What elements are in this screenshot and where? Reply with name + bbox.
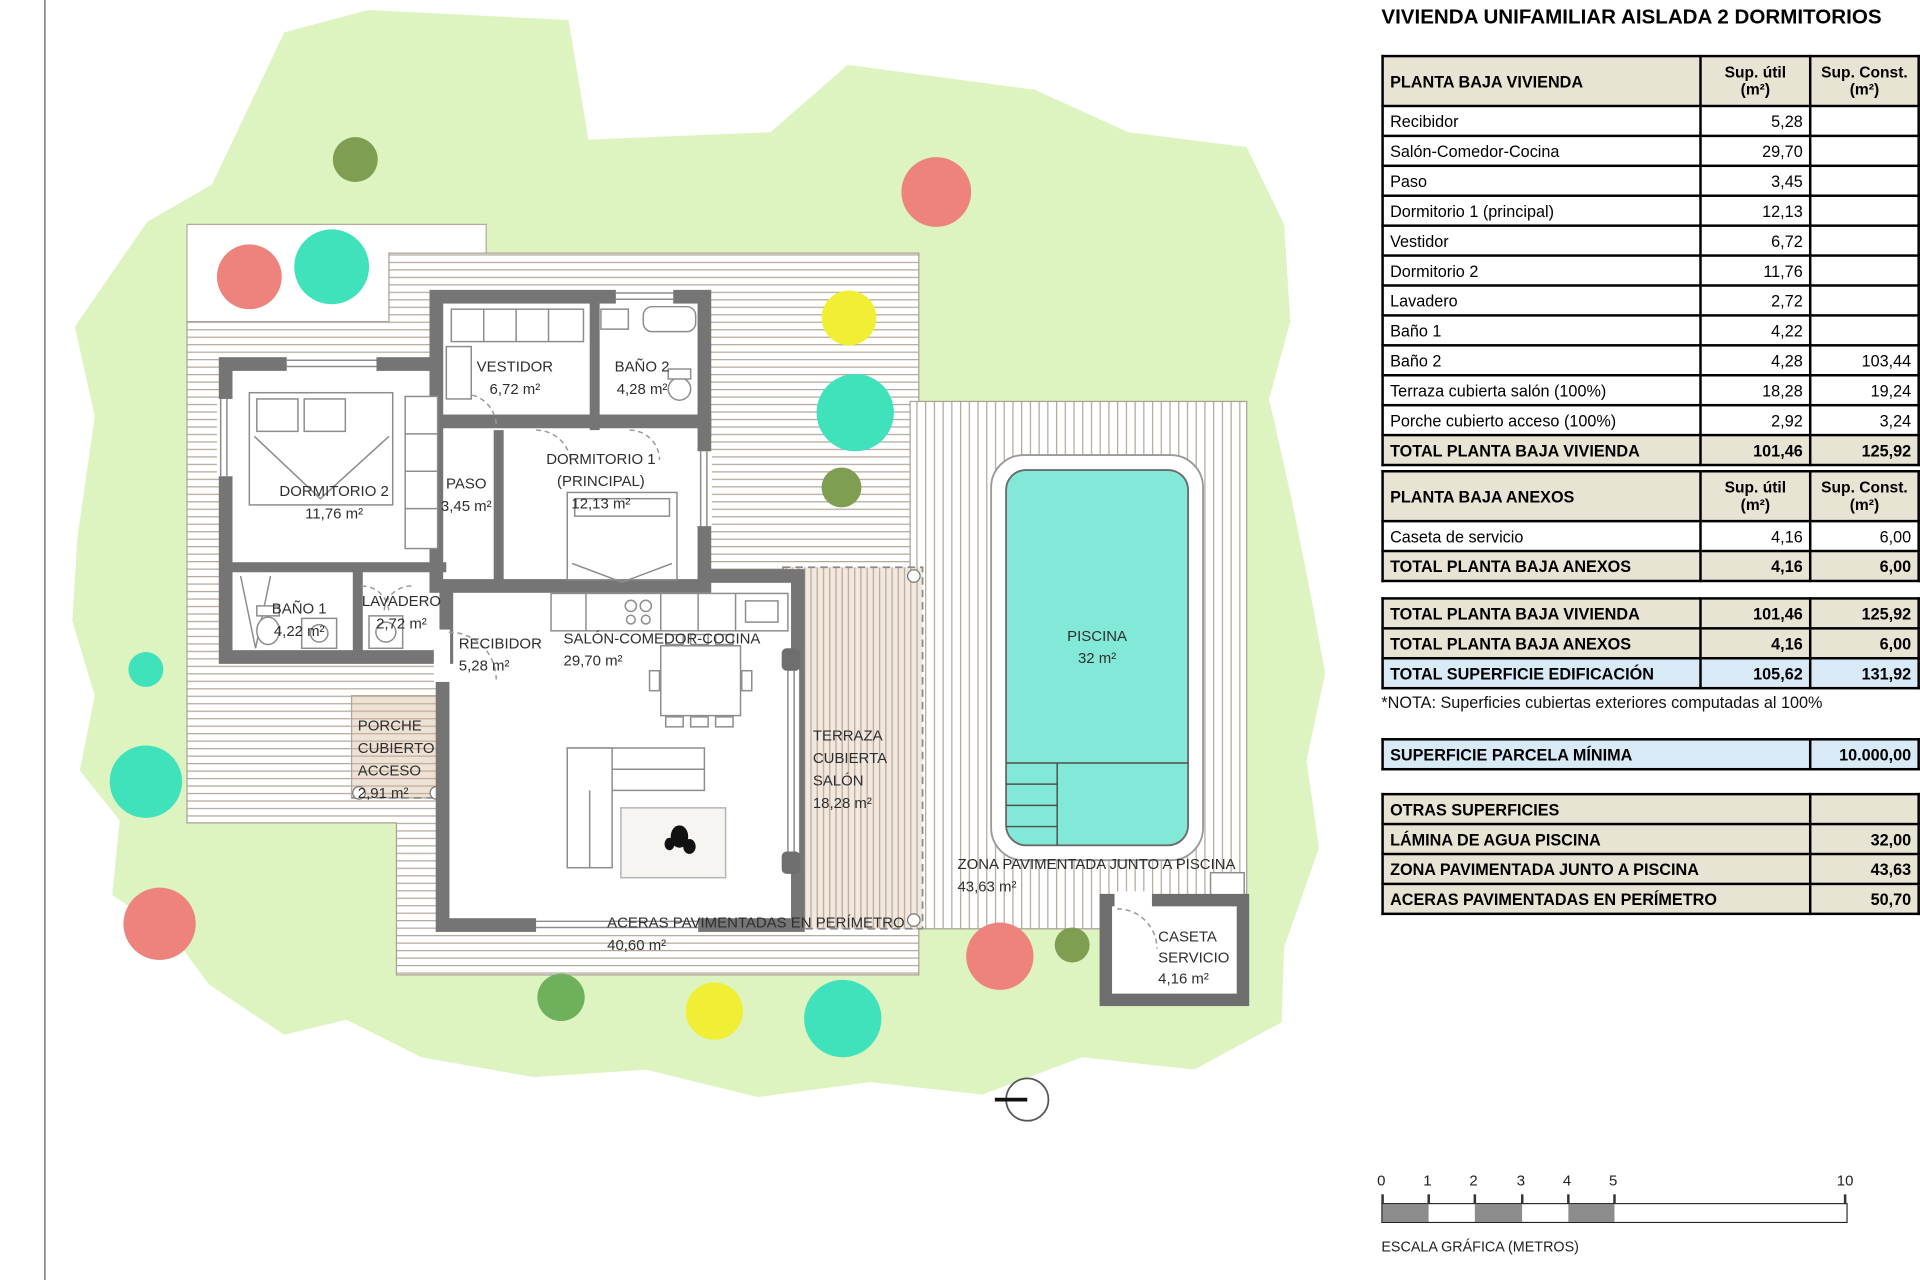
row-util: 11,76 (1700, 256, 1810, 286)
scale-bar: 0 1 2 3 4 5 10 ESCALA GRÁFICA (METROS) (1381, 1172, 1855, 1256)
row-value: 43,63 (1810, 854, 1918, 884)
label-porche: PORCHE (358, 718, 422, 735)
row-label: Caseta de servicio (1383, 521, 1701, 551)
row-label: Salón-Comedor-Cocina (1383, 136, 1701, 166)
total-util: 101,46 (1700, 598, 1810, 628)
total-label: TOTAL PLANTA BAJA ANEXOS (1383, 628, 1701, 658)
table-total-row: TOTAL PLANTA BAJA ANEXOS4,166,00 (1383, 551, 1919, 581)
label-caseta-area: 4,16 m² (1158, 971, 1209, 988)
label-vestidor: VESTIDOR (477, 359, 554, 376)
table-row: Caseta de servicio4,166,00 (1383, 521, 1919, 551)
row-label: Paso (1383, 166, 1701, 196)
row-const: 103,44 (1810, 345, 1918, 375)
label-salon: SALÓN-COMEDOR-COCINA (564, 630, 761, 647)
table-row: ACERAS PAVIMENTADAS EN PERÍMETRO50,70 (1383, 884, 1919, 914)
tree (537, 974, 584, 1021)
table-row: LÁMINA DE AGUA PISCINA32,00 (1383, 824, 1919, 854)
row-util: 4,16 (1700, 521, 1810, 551)
row-label: Lavadero (1383, 285, 1701, 315)
label-terraza-l2: CUBIERTA (813, 750, 887, 767)
tree (294, 229, 369, 304)
label-recibidor-area: 5,28 m² (459, 658, 510, 675)
scale-ticks (1381, 1194, 1855, 1203)
row-label: Baño 2 (1383, 345, 1701, 375)
page-title: VIVIENDA UNIFAMILIAR AISLADA 2 DORMITORI… (1381, 6, 1920, 30)
terrace-column (908, 914, 920, 926)
row-util: 2,92 (1700, 405, 1810, 435)
tree (901, 157, 971, 227)
table-resumen: TOTAL PLANTA BAJA VIVIENDA101,46125,92 T… (1381, 597, 1920, 689)
label-caseta: CASETA (1158, 928, 1217, 945)
total-util: 101,46 (1700, 435, 1810, 465)
table-header: PLANTA BAJA VIVIENDA (1383, 56, 1701, 106)
plan-sheet: DORMITORIO 2 11,76 m² BAÑO 1 4,22 m² LAV… (0, 0, 1920, 1280)
row-util: 4,28 (1700, 345, 1810, 375)
table-row: ZONA PAVIMENTADA JUNTO A PISCINA43,63 (1383, 854, 1919, 884)
total-const: 125,92 (1810, 598, 1918, 628)
row-const (1810, 315, 1918, 345)
table-row: Dormitorio 211,76 (1383, 256, 1919, 286)
scale-tick-label: 3 (1517, 1172, 1525, 1189)
total-const: 131,92 (1810, 658, 1918, 688)
table-parcela-minima: SUPERFICIE PARCELA MÍNIMA 10.000,00 (1381, 738, 1920, 770)
total-label: TOTAL SUPERFICIE EDIFICACIÓN (1383, 658, 1701, 688)
table-row: Recibidor5,28 (1383, 106, 1919, 136)
label-terraza-l3: SALÓN (813, 772, 864, 789)
nota-text: *NOTA: Superficies cubiertas exteriores … (1381, 693, 1917, 712)
row-value: 32,00 (1810, 824, 1918, 854)
col-sup-util: Sup. útil (m²) (1700, 56, 1810, 106)
total-label: TOTAL PLANTA BAJA VIVIENDA (1383, 435, 1701, 465)
scale-tick-labels: 0 1 2 3 4 5 10 (1381, 1172, 1855, 1194)
row-label: Baño 1 (1383, 315, 1701, 345)
scale-tick-label: 0 (1377, 1172, 1385, 1189)
tree (804, 980, 881, 1057)
table-total-row: TOTAL PLANTA BAJA ANEXOS4,166,00 (1383, 628, 1919, 658)
label-terraza-area: 18,28 m² (813, 795, 872, 812)
row-const (1810, 136, 1918, 166)
label-terraza: TERRAZA (813, 728, 883, 745)
table-row: Salón-Comedor-Cocina29,70 (1383, 136, 1919, 166)
row-label: Dormitorio 2 (1383, 256, 1701, 286)
row-const (1810, 106, 1918, 136)
label-aceras: ACERAS PAVIMENTADAS EN PERÍMETRO (607, 915, 904, 932)
col-sup-const: Sup. Const. (m²) (1810, 471, 1918, 521)
row-const (1810, 196, 1918, 226)
table-total-row: TOTAL PLANTA BAJA VIVIENDA101,46125,92 (1383, 598, 1919, 628)
label-porche-l2: CUBIERTO (358, 740, 435, 757)
row-label: Recibidor (1383, 106, 1701, 136)
table-row: Terraza cubierta salón (100%)18,2819,24 (1383, 375, 1919, 405)
parcela-label: SUPERFICIE PARCELA MÍNIMA (1383, 739, 1811, 769)
table-total-row: TOTAL PLANTA BAJA VIVIENDA101,46125,92 (1383, 435, 1919, 465)
row-label: Vestidor (1383, 226, 1701, 256)
tree (817, 374, 894, 451)
label-dorm1-l2: (PRINCIPAL) (557, 473, 645, 490)
row-const (1810, 256, 1918, 286)
table-grand-total-row: TOTAL SUPERFICIE EDIFICACIÓN105,62131,92 (1383, 658, 1919, 688)
label-bano1-area: 4,22 m² (274, 623, 325, 640)
closet (451, 309, 583, 341)
total-const: 6,00 (1810, 628, 1918, 658)
row-const (1810, 166, 1918, 196)
table-header-row: OTRAS SUPERFICIES (1383, 794, 1919, 824)
scale-tick-label: 5 (1609, 1172, 1617, 1189)
kitchen-sink (746, 601, 778, 622)
row-label: LÁMINA DE AGUA PISCINA (1383, 824, 1811, 854)
label-dorm1: DORMITORIO 1 (546, 451, 655, 468)
table-row: Baño 24,28103,44 (1383, 345, 1919, 375)
row-label: Dormitorio 1 (principal) (1383, 196, 1701, 226)
label-bano1: BAÑO 1 (272, 600, 327, 617)
label-salon-area: 29,70 m² (564, 653, 623, 670)
table-header-empty (1810, 794, 1918, 824)
scale-tick-label: 10 (1837, 1172, 1854, 1189)
row-const (1810, 226, 1918, 256)
label-caseta-l2: SERVICIO (1158, 949, 1229, 966)
table-row: Baño 14,22 (1383, 315, 1919, 345)
table-header: OTRAS SUPERFICIES (1383, 794, 1811, 824)
table-row: Paso3,45 (1383, 166, 1919, 196)
col-sup-util: Sup. útil (m²) (1700, 471, 1810, 521)
label-zona: ZONA PAVIMENTADA JUNTO A PISCINA (957, 856, 1235, 873)
scale-tick-label: 1 (1423, 1172, 1431, 1189)
bathtub (643, 307, 695, 332)
label-piscina-area: 32 m² (1078, 650, 1116, 667)
wall-stub (782, 851, 801, 873)
total-util: 4,16 (1700, 551, 1810, 581)
table-row: Lavadero2,72 (1383, 285, 1919, 315)
scale-bar-segment (1475, 1204, 1522, 1221)
label-recibidor: RECIBIDOR (459, 635, 542, 652)
row-util: 29,70 (1700, 136, 1810, 166)
total-label: TOTAL PLANTA BAJA ANEXOS (1383, 551, 1701, 581)
row-label: Terraza cubierta salón (100%) (1383, 375, 1701, 405)
tree (333, 137, 378, 182)
table-header-row: PLANTA BAJA ANEXOS Sup. útil (m²) Sup. C… (1383, 471, 1919, 521)
parcela-value: 10.000,00 (1810, 739, 1918, 769)
terrace-column (908, 570, 920, 582)
scale-bar-segment (1568, 1204, 1614, 1221)
sink (601, 309, 628, 329)
wall-stub (782, 648, 801, 670)
table-row: Porche cubierto acceso (100%)2,923,24 (1383, 405, 1919, 435)
scale-tick-label: 4 (1563, 1172, 1571, 1189)
scale-tick-label: 2 (1469, 1172, 1477, 1189)
tree (128, 652, 163, 687)
tree (123, 888, 195, 960)
row-const: 3,24 (1810, 405, 1918, 435)
table-header: PLANTA BAJA ANEXOS (1383, 471, 1701, 521)
table-row: Dormitorio 1 (principal)12,13 (1383, 196, 1919, 226)
table-row: Vestidor6,72 (1383, 226, 1919, 256)
row-label: ZONA PAVIMENTADA JUNTO A PISCINA (1383, 854, 1811, 884)
scale-bar-label: ESCALA GRÁFICA (METROS) (1381, 1240, 1855, 1255)
tree (966, 923, 1033, 990)
total-util: 4,16 (1700, 628, 1810, 658)
row-const: 19,24 (1810, 375, 1918, 405)
label-paso: PASO (446, 476, 486, 493)
tree (1055, 928, 1090, 963)
row-util: 2,72 (1700, 285, 1810, 315)
table-header-row: PLANTA BAJA VIVIENDA Sup. útil (m²) Sup.… (1383, 56, 1919, 106)
row-util: 6,72 (1700, 226, 1810, 256)
table-otras-superficies: OTRAS SUPERFICIES LÁMINA DE AGUA PISCINA… (1381, 793, 1920, 915)
scale-bar-segment (1429, 1204, 1475, 1221)
label-piscina: PISCINA (1067, 628, 1127, 645)
label-bano2-area: 4,28 m² (617, 381, 668, 398)
label-zona-area: 43,63 m² (957, 878, 1016, 895)
row-util: 5,28 (1700, 106, 1810, 136)
total-label: TOTAL PLANTA BAJA VIVIENDA (1383, 598, 1701, 628)
label-lavadero: LAVADERO (362, 593, 441, 610)
label-dorm2-area: 11,76 m² (305, 506, 363, 523)
total-util: 105,62 (1700, 658, 1810, 688)
label-bano2: BAÑO 2 (615, 359, 670, 376)
row-const: 6,00 (1810, 521, 1918, 551)
row-util: 18,28 (1700, 375, 1810, 405)
label-dorm2: DORMITORIO 2 (279, 483, 388, 500)
tree (110, 746, 182, 818)
scale-bar-segment (1383, 1204, 1429, 1221)
tree (822, 290, 877, 345)
total-const: 125,92 (1810, 435, 1918, 465)
total-const: 6,00 (1810, 551, 1918, 581)
table-row: SUPERFICIE PARCELA MÍNIMA 10.000,00 (1383, 739, 1919, 769)
tree (686, 982, 743, 1039)
scale-bar-segment (1522, 1204, 1568, 1221)
row-label: Porche cubierto acceso (100%) (1383, 405, 1701, 435)
dining-table (661, 646, 741, 716)
row-label: ACERAS PAVIMENTADAS EN PERÍMETRO (1383, 884, 1811, 914)
table-planta-baja-anexos: PLANTA BAJA ANEXOS Sup. útil (m²) Sup. C… (1381, 470, 1920, 582)
table-planta-baja-vivienda: PLANTA BAJA VIVIENDA Sup. útil (m²) Sup.… (1381, 55, 1920, 466)
tree (217, 244, 282, 309)
label-paso-area: 3,45 m² (441, 498, 492, 515)
label-dorm1-area: 12,13 m² (571, 496, 630, 513)
row-value: 50,70 (1810, 884, 1918, 914)
label-aceras-area: 40,60 m² (607, 937, 666, 954)
label-vestidor-area: 6,72 m² (490, 381, 541, 398)
col-sup-const: Sup. Const. (m²) (1810, 56, 1918, 106)
label-porche-l3: ACCESO (358, 762, 421, 779)
toilet (668, 378, 690, 400)
row-const (1810, 285, 1918, 315)
row-util: 3,45 (1700, 166, 1810, 196)
tree (822, 468, 862, 508)
label-porche-area: 2,91 m² (358, 785, 409, 802)
scale-bar-segments (1381, 1203, 1847, 1223)
row-util: 4,22 (1700, 315, 1810, 345)
wardrobe (405, 396, 437, 548)
row-util: 12,13 (1700, 196, 1810, 226)
scale-bar-segment (1614, 1204, 1846, 1221)
label-lavadero-area: 2,72 m² (376, 615, 427, 632)
cooktop (625, 600, 636, 611)
